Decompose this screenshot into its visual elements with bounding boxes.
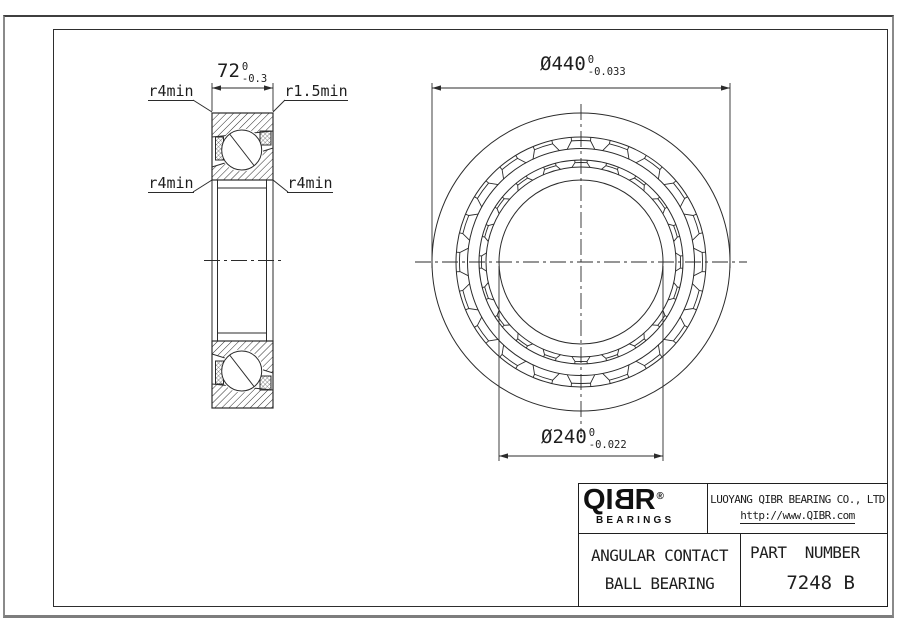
company-logo: QIBR® BEARINGS [579,484,708,533]
company-info: LUOYANG QIBR BEARING CO., LTD http://www… [708,484,887,533]
dimension-od-value: Ø440 [540,55,586,74]
title-block: QIBR® BEARINGS LUOYANG QIBR BEARING CO.,… [578,483,888,607]
product-name-cell: ANGULAR CONTACT BALL BEARING [579,534,741,606]
registered-trademark-symbol: ® [657,491,664,502]
logo-wordmark: QIBR® [583,486,707,515]
part-number-cell: PART NUMBER 7248 B [741,534,887,606]
product-name-line2: BALL BEARING [605,570,715,598]
dimension-bore-value: Ø240 [541,428,587,447]
radius-label-top-right: r1.5min [284,84,348,101]
dimension-width-value: 72 [217,62,240,81]
title-block-header-row: QIBR® BEARINGS LUOYANG QIBR BEARING CO.,… [579,484,887,534]
company-website: http://www.QIBR.com [740,509,854,524]
dimension-od-tolerance: 0 -0.033 [588,55,626,78]
product-name-line1: ANGULAR CONTACT [591,542,728,570]
drawing-sheet: { "title_block": { "logo": {"part1": "QI… [0,0,900,636]
radius-label-bottom-right: r4min [287,176,333,193]
title-block-detail-row: ANGULAR CONTACT BALL BEARING PART NUMBER… [579,534,887,606]
dimension-width: 72 0 -0.3 [217,62,267,85]
part-number-label: PART NUMBER [750,543,887,562]
logo-subtitle: BEARINGS [596,515,707,526]
radius-label-top-left: r4min [148,84,194,101]
part-number-value: 7248 B [750,572,887,594]
radius-label-bottom-left: r4min [148,176,194,193]
dimension-bore-diameter: Ø240 0 -0.022 [541,428,627,451]
dimension-bore-tolerance: 0 -0.022 [589,428,627,451]
dimension-width-tolerance: 0 -0.3 [242,62,267,85]
dimension-lines [212,83,730,461]
dimension-outer-diameter: Ø440 0 -0.033 [540,55,626,78]
company-name: LUOYANG QIBR BEARING CO., LTD [710,493,885,506]
